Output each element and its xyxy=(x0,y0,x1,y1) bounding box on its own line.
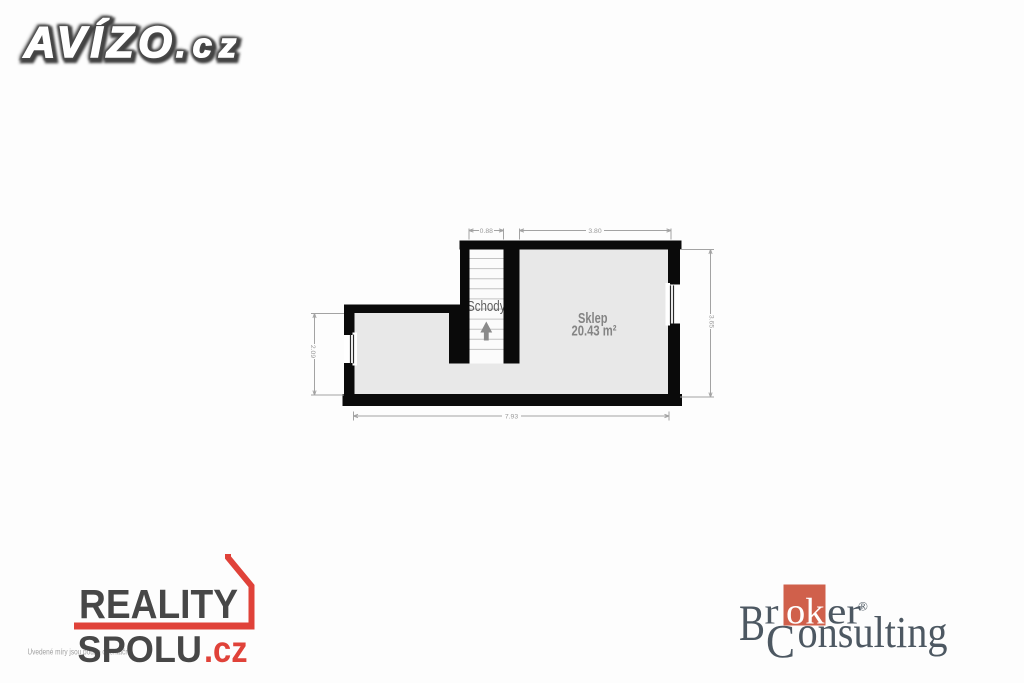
svg-text:REALITY: REALITY xyxy=(79,581,238,627)
svg-text:SPOLU: SPOLU xyxy=(78,629,203,670)
svg-text:0.88: 0.88 xyxy=(480,228,493,235)
svg-text:7.93: 7.93 xyxy=(505,414,518,421)
svg-text:3.80: 3.80 xyxy=(588,228,601,235)
svg-text:.cz: .cz xyxy=(204,629,248,670)
svg-text:2.09: 2.09 xyxy=(309,345,316,358)
svg-text:C: C xyxy=(766,615,795,668)
svg-text:3.65: 3.65 xyxy=(708,315,715,328)
svg-text:onsulting: onsulting xyxy=(798,607,948,657)
svg-text:B: B xyxy=(739,596,765,652)
svg-text:Schody: Schody xyxy=(467,299,506,315)
svg-text:20.43 m²: 20.43 m² xyxy=(572,323,617,340)
